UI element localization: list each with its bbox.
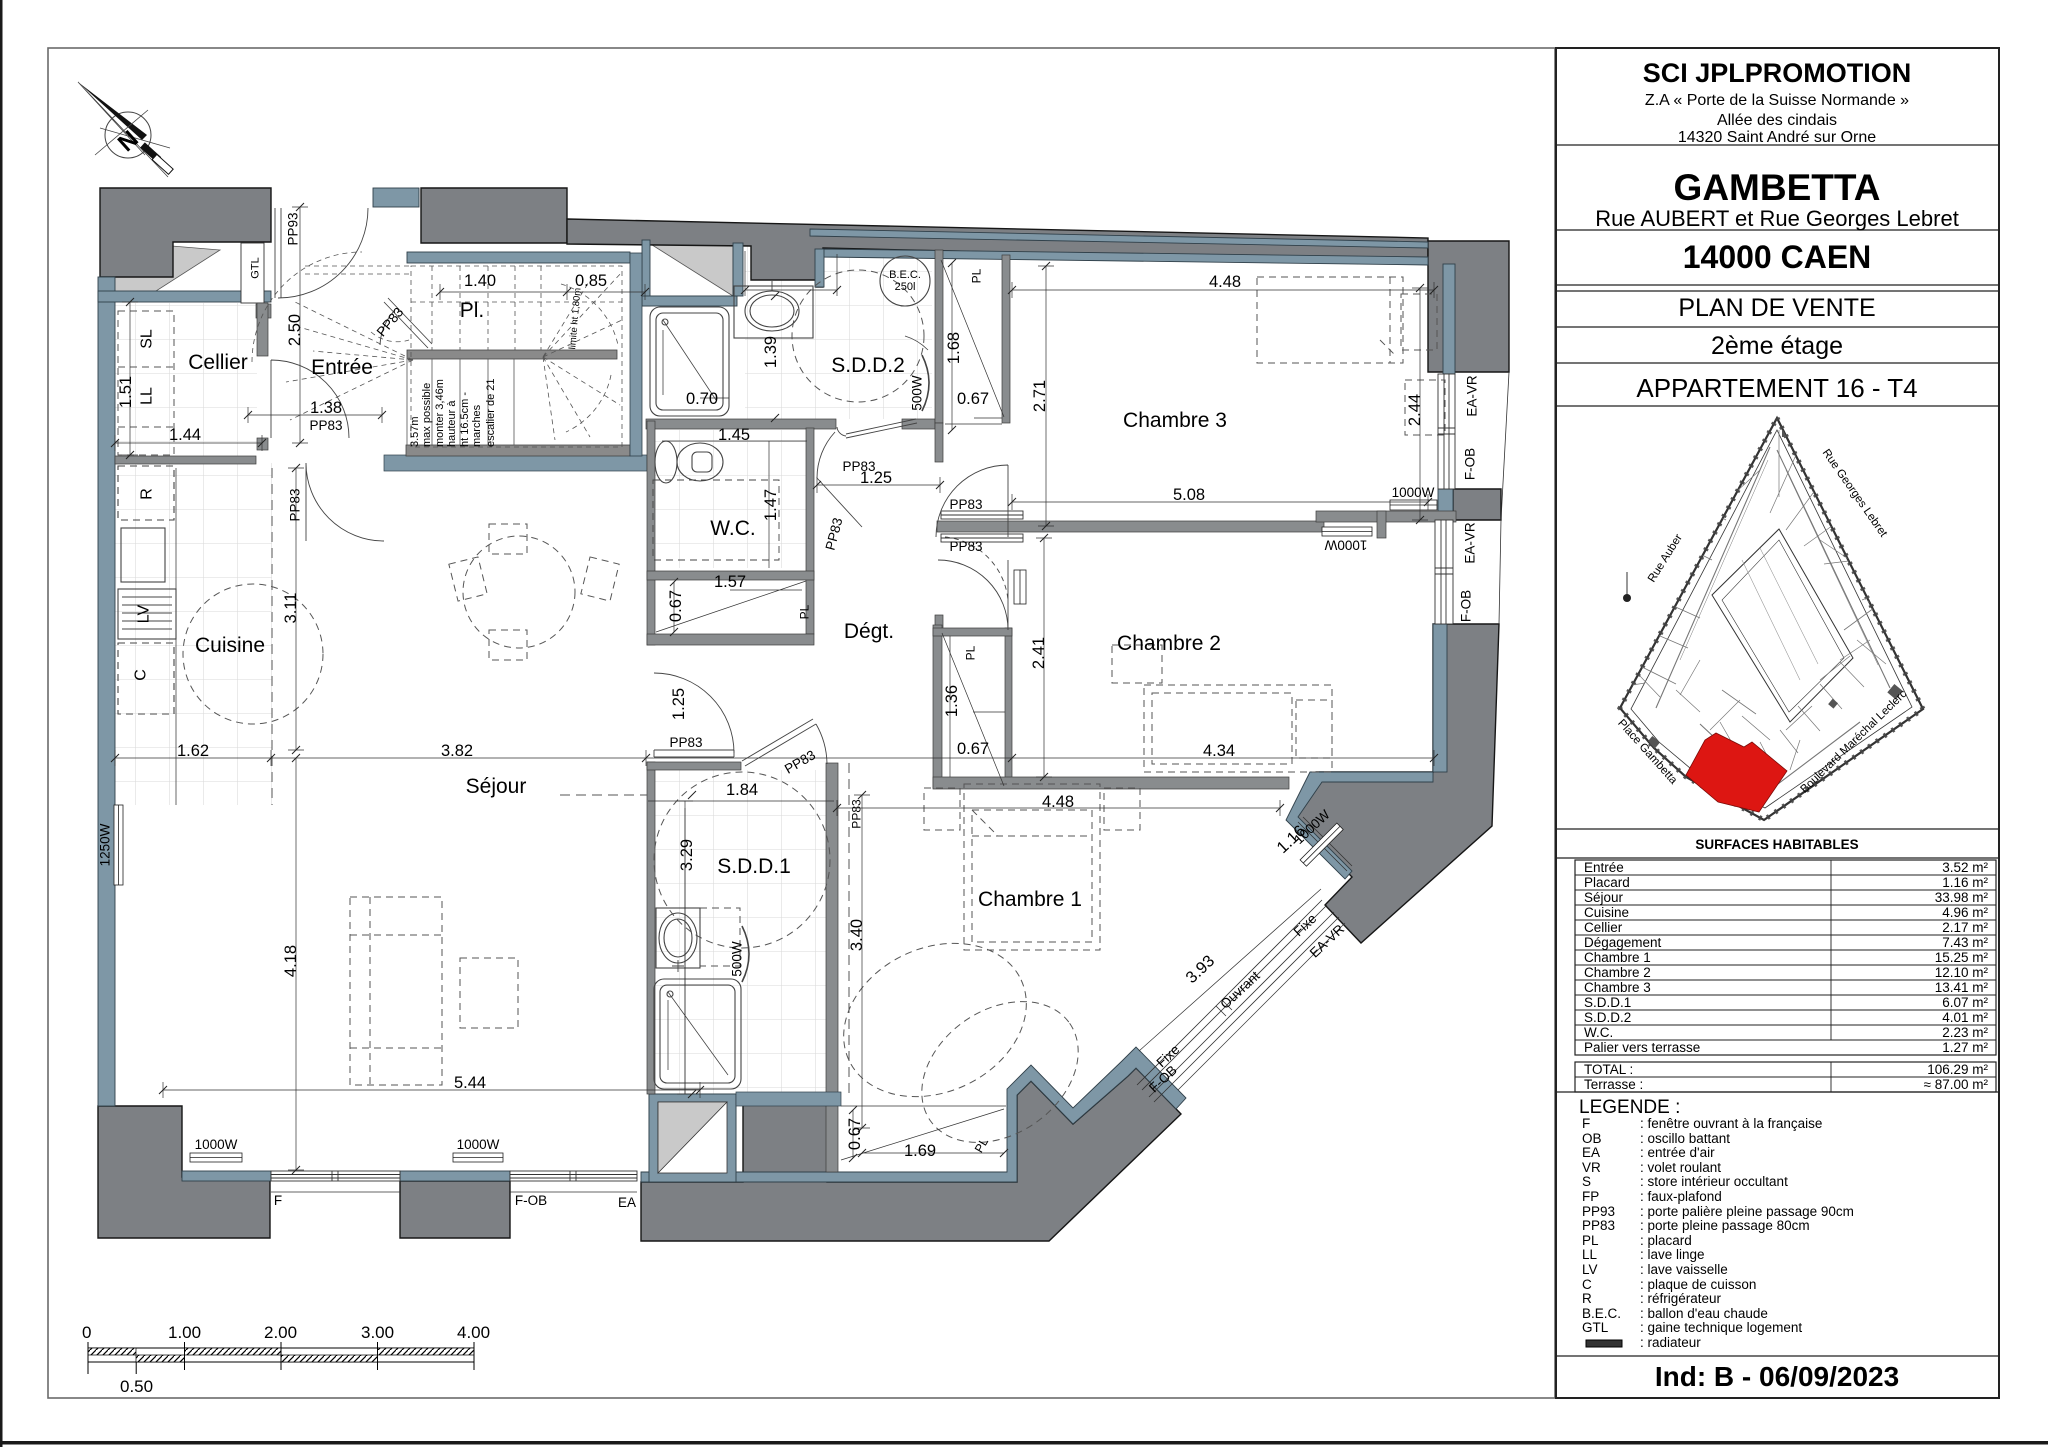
svg-text:1.40: 1.40 xyxy=(464,272,496,290)
svg-text:F-OB: F-OB xyxy=(1459,590,1474,622)
svg-text:Rue AUBERT et Rue Georges Lebr: Rue AUBERT et Rue Georges Lebret xyxy=(1595,206,1959,231)
svg-text:5.44: 5.44 xyxy=(454,1074,486,1092)
svg-text:0.50: 0.50 xyxy=(120,1377,153,1396)
svg-text:LL: LL xyxy=(139,387,156,405)
svg-text:: ballon d'eau chaude: : ballon d'eau chaude xyxy=(1640,1306,1768,1321)
svg-text:max possible: max possible xyxy=(421,383,433,447)
svg-text:: volet roulant: : volet roulant xyxy=(1640,1160,1721,1175)
svg-text:: fenêtre ouvrant à la françai: : fenêtre ouvrant à la française xyxy=(1640,1116,1822,1131)
svg-text:PLAN DE VENTE: PLAN DE VENTE xyxy=(1678,294,1875,322)
svg-text:1.16 m²: 1.16 m² xyxy=(1942,875,1988,890)
svg-text:Chambre 1: Chambre 1 xyxy=(1584,950,1651,965)
svg-text:LEGENDE :: LEGENDE : xyxy=(1579,1097,1680,1118)
svg-text:Cellier: Cellier xyxy=(188,351,248,374)
svg-text:: plaque de cuisson: : plaque de cuisson xyxy=(1640,1277,1756,1292)
svg-text:EA-VR: EA-VR xyxy=(1463,522,1478,564)
svg-text:C: C xyxy=(1582,1277,1592,1292)
svg-text:0.85: 0.85 xyxy=(575,272,607,290)
svg-text:3.29: 3.29 xyxy=(678,839,696,871)
svg-text:OB: OB xyxy=(1582,1131,1602,1146)
svg-text:1.62: 1.62 xyxy=(177,742,209,760)
svg-text:2.00: 2.00 xyxy=(264,1323,297,1342)
svg-text:PP83: PP83 xyxy=(949,497,982,512)
svg-text:: oscillo battant: : oscillo battant xyxy=(1640,1131,1730,1146)
svg-text:500W: 500W xyxy=(910,375,925,411)
svg-text:PP83: PP83 xyxy=(1582,1218,1615,1233)
svg-text:S.D.D.2: S.D.D.2 xyxy=(1584,1010,1631,1025)
svg-text:Ind: B - 06/09/2023: Ind: B - 06/09/2023 xyxy=(1655,1361,1899,1392)
svg-text:2.41: 2.41 xyxy=(1030,637,1048,669)
svg-text:6.07 m²: 6.07 m² xyxy=(1942,995,1988,1010)
svg-text:escalier de 21: escalier de 21 xyxy=(485,379,497,448)
svg-text:F-OB: F-OB xyxy=(515,1193,547,1208)
svg-text:Entrée: Entrée xyxy=(311,356,373,379)
svg-text:1.47: 1.47 xyxy=(762,489,780,521)
svg-text:106.29 m²: 106.29 m² xyxy=(1927,1062,1988,1077)
svg-text:0.67: 0.67 xyxy=(957,740,989,758)
svg-text:0.67: 0.67 xyxy=(846,1118,864,1150)
svg-text:C: C xyxy=(133,669,150,681)
svg-text:3.00: 3.00 xyxy=(361,1323,394,1342)
svg-text:1250W: 1250W xyxy=(98,823,113,866)
svg-text:PP93: PP93 xyxy=(1582,1204,1615,1219)
svg-text:3.57m: 3.57m xyxy=(409,416,421,447)
svg-text:PP83: PP83 xyxy=(949,539,982,554)
svg-text:Cuisine: Cuisine xyxy=(1584,905,1629,920)
svg-text:PL: PL xyxy=(970,268,984,283)
svg-text:1.44: 1.44 xyxy=(169,426,201,444)
svg-text:2.17 m²: 2.17 m² xyxy=(1942,920,1988,935)
svg-text:APPARTEMENT 16 - T4: APPARTEMENT 16 - T4 xyxy=(1636,373,1917,403)
svg-text:4.48: 4.48 xyxy=(1042,793,1074,811)
svg-text:Dégt.: Dégt. xyxy=(844,620,894,643)
svg-text:0: 0 xyxy=(82,1323,91,1342)
svg-text:LV: LV xyxy=(1582,1262,1598,1277)
svg-text:VR: VR xyxy=(1582,1160,1601,1175)
svg-text:F: F xyxy=(274,1193,282,1208)
svg-text:1000W: 1000W xyxy=(457,1137,500,1152)
svg-text:3.11: 3.11 xyxy=(282,593,300,624)
svg-text:500W: 500W xyxy=(730,941,745,977)
svg-text:7.43 m²: 7.43 m² xyxy=(1942,935,1988,950)
svg-text:1.45: 1.45 xyxy=(718,426,750,444)
svg-text:PP83: PP83 xyxy=(842,459,875,474)
svg-text:S.D.D.2: S.D.D.2 xyxy=(831,354,905,377)
svg-text:1.39: 1.39 xyxy=(762,336,780,368)
svg-text:PL: PL xyxy=(1582,1233,1599,1248)
svg-text:R: R xyxy=(1582,1291,1592,1306)
svg-text:Dégagement: Dégagement xyxy=(1584,935,1662,950)
svg-text:Séjour: Séjour xyxy=(1584,890,1624,905)
svg-text:Chambre 3: Chambre 3 xyxy=(1123,409,1227,432)
svg-text:≈ 87.00 m²: ≈ 87.00 m² xyxy=(1924,1077,1989,1092)
svg-text:PP83: PP83 xyxy=(822,516,845,552)
svg-text:4.18: 4.18 xyxy=(282,945,300,977)
svg-text:Palier vers terrasse: Palier vers terrasse xyxy=(1584,1040,1700,1055)
svg-text:EA-VR: EA-VR xyxy=(1465,375,1480,417)
svg-text:hauteur à: hauteur à xyxy=(446,400,458,447)
svg-text:Fixe: Fixe xyxy=(1291,911,1320,939)
svg-text:S: S xyxy=(1582,1174,1591,1189)
svg-text:4.96 m²: 4.96 m² xyxy=(1942,905,1988,920)
svg-text:2ème étage: 2ème étage xyxy=(1711,332,1843,360)
svg-text:SURFACES HABITABLES: SURFACES HABITABLES xyxy=(1695,837,1858,852)
svg-text:1.51: 1.51 xyxy=(117,376,135,408)
svg-text:1000W: 1000W xyxy=(1392,485,1435,500)
svg-text:LV: LV xyxy=(136,604,153,623)
svg-text:GTL: GTL xyxy=(1582,1320,1609,1335)
svg-text:1.27 m²: 1.27 m² xyxy=(1942,1040,1988,1055)
svg-text:0.67: 0.67 xyxy=(667,590,685,622)
svg-text:2.50: 2.50 xyxy=(286,314,304,346)
svg-text:marches: marches xyxy=(471,404,483,447)
svg-text:Chambre 3: Chambre 3 xyxy=(1584,980,1651,995)
svg-text:PP93: PP93 xyxy=(286,212,301,245)
svg-text:PL: PL xyxy=(972,1135,992,1155)
svg-text:PP83: PP83 xyxy=(850,799,864,829)
svg-text:0.70: 0.70 xyxy=(686,390,718,408)
svg-text:Chambre 2: Chambre 2 xyxy=(1117,632,1221,655)
svg-text:B.E.C.: B.E.C. xyxy=(1582,1306,1621,1321)
svg-text:1000W: 1000W xyxy=(1324,538,1367,553)
svg-text:: lave vaisselle: : lave vaisselle xyxy=(1640,1262,1728,1277)
svg-text:PP83: PP83 xyxy=(374,305,407,340)
svg-text:PP83: PP83 xyxy=(669,735,702,750)
svg-text:1.36: 1.36 xyxy=(943,685,961,717)
svg-text:S.D.D.1: S.D.D.1 xyxy=(1584,995,1631,1010)
svg-text:GAMBETTA: GAMBETTA xyxy=(1674,167,1881,208)
svg-text:Chambre 1: Chambre 1 xyxy=(978,888,1082,911)
svg-text:TOTAL :: TOTAL : xyxy=(1584,1062,1633,1077)
svg-text:: réfrigérateur: : réfrigérateur xyxy=(1640,1291,1722,1306)
svg-text:15.25 m²: 15.25 m² xyxy=(1935,950,1989,965)
svg-text:PL: PL xyxy=(964,645,978,660)
svg-text:14320 Saint André sur Orne: 14320 Saint André sur Orne xyxy=(1678,129,1876,146)
svg-text:4.01 m²: 4.01 m² xyxy=(1942,1010,1988,1025)
svg-text:Chambre 2: Chambre 2 xyxy=(1584,965,1651,980)
svg-text:: porte palière pleine passage: : porte palière pleine passage 90cm xyxy=(1640,1204,1854,1219)
svg-text:F-OB: F-OB xyxy=(1463,448,1478,480)
svg-text:2.71: 2.71 xyxy=(1031,380,1049,412)
svg-text:3.93: 3.93 xyxy=(1182,952,1218,987)
svg-text:4.00: 4.00 xyxy=(457,1323,490,1342)
svg-text:1.69: 1.69 xyxy=(904,1142,936,1160)
svg-text:2.44: 2.44 xyxy=(1406,394,1424,426)
svg-text:FP: FP xyxy=(1582,1189,1599,1204)
svg-text:limite ht 1,80m: limite ht 1,80m xyxy=(567,287,583,350)
svg-text:B.E.C.: B.E.C. xyxy=(889,269,921,281)
svg-text:3.52 m²: 3.52 m² xyxy=(1942,860,1988,875)
svg-text:2.23 m²: 2.23 m² xyxy=(1942,1025,1988,1040)
svg-text:SL: SL xyxy=(139,329,156,349)
svg-text:R: R xyxy=(139,488,156,500)
svg-text:Entrée: Entrée xyxy=(1584,860,1624,875)
svg-text:1.68: 1.68 xyxy=(945,332,963,364)
svg-text:SCI JPLPROMOTION: SCI JPLPROMOTION xyxy=(1643,58,1912,88)
svg-text:Placard: Placard xyxy=(1584,875,1630,890)
svg-text:: store intérieur occultant: : store intérieur occultant xyxy=(1640,1174,1788,1189)
svg-text:S.D.D.1: S.D.D.1 xyxy=(717,855,791,878)
svg-text:4.34: 4.34 xyxy=(1203,742,1235,760)
svg-text:PP83: PP83 xyxy=(288,488,303,521)
svg-text:Cuisine: Cuisine xyxy=(195,634,265,657)
svg-text:EA: EA xyxy=(618,1195,636,1210)
svg-text:: porte pleine passage 80cm: : porte pleine passage 80cm xyxy=(1640,1218,1810,1233)
svg-text:: placard: : placard xyxy=(1640,1233,1692,1248)
svg-text:13.41 m²: 13.41 m² xyxy=(1935,980,1989,995)
svg-text:5.08: 5.08 xyxy=(1173,486,1205,504)
svg-text:: radiateur: : radiateur xyxy=(1640,1335,1701,1350)
svg-text:: entrée d'air: : entrée d'air xyxy=(1640,1145,1715,1160)
svg-text:PL: PL xyxy=(798,604,812,619)
svg-text:0.67: 0.67 xyxy=(957,390,989,408)
svg-text:12.10 m²: 12.10 m² xyxy=(1935,965,1989,980)
svg-text:3.40: 3.40 xyxy=(848,919,866,951)
svg-text:W.C.: W.C. xyxy=(710,517,756,540)
svg-text:PP83: PP83 xyxy=(309,418,342,433)
svg-text:Allée des cindais: Allée des cindais xyxy=(1717,112,1837,129)
svg-text:3.82: 3.82 xyxy=(441,742,473,760)
svg-text:Pl.: Pl. xyxy=(460,299,485,322)
svg-text:Z.A « Porte de la Suisse Norma: Z.A « Porte de la Suisse Normande » xyxy=(1645,92,1909,109)
svg-text:33.98 m²: 33.98 m² xyxy=(1935,890,1989,905)
svg-text:1.25: 1.25 xyxy=(670,688,688,720)
svg-text:1000W: 1000W xyxy=(195,1137,238,1152)
svg-text:1.84: 1.84 xyxy=(726,781,758,799)
svg-text:F: F xyxy=(1582,1116,1590,1131)
svg-text:250l: 250l xyxy=(895,281,916,293)
svg-text:LL: LL xyxy=(1582,1247,1598,1262)
svg-text:: gaine technique logement: : gaine technique logement xyxy=(1640,1320,1802,1335)
svg-text:Cellier: Cellier xyxy=(1584,920,1623,935)
svg-text:W.C.: W.C. xyxy=(1584,1025,1613,1040)
svg-text:Séjour: Séjour xyxy=(466,775,527,798)
svg-text:1.57: 1.57 xyxy=(714,573,746,591)
svg-text:14000 CAEN: 14000 CAEN xyxy=(1683,239,1872,275)
svg-text:EA: EA xyxy=(1582,1145,1600,1160)
svg-text:1.38: 1.38 xyxy=(310,399,342,417)
svg-text:: lave linge: : lave linge xyxy=(1640,1247,1705,1262)
svg-text:GTL: GTL xyxy=(250,257,262,278)
svg-text:Terrasse :: Terrasse : xyxy=(1584,1077,1643,1092)
svg-text:monter 3,46m: monter 3,46m xyxy=(434,379,446,447)
svg-text:: faux-plafond: : faux-plafond xyxy=(1640,1189,1722,1204)
svg-text:ht 16.5cm -: ht 16.5cm - xyxy=(459,392,471,447)
svg-text:4.48: 4.48 xyxy=(1209,273,1241,291)
svg-text:1.00: 1.00 xyxy=(168,1323,201,1342)
